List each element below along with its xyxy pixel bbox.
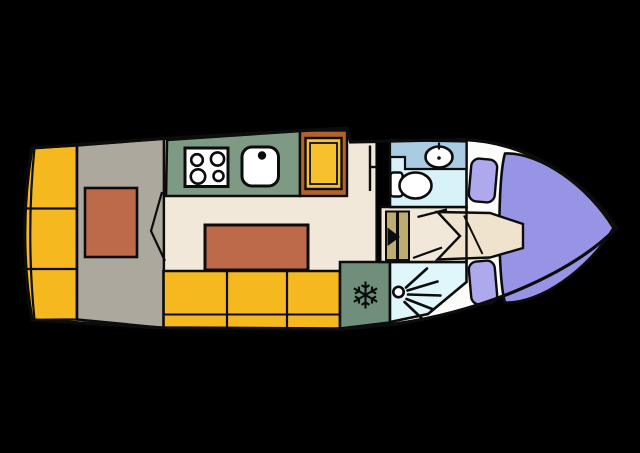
stove-burner-bl — [191, 169, 205, 183]
saloon-table — [205, 225, 308, 270]
basin-drain — [437, 156, 441, 160]
boat-floorplan: ❄ — [0, 0, 640, 453]
aft-cabin-mattress — [85, 188, 137, 257]
corridor-left-wall — [377, 207, 382, 262]
snowflake-icon: ❄ — [350, 275, 381, 318]
stove-burner-tr — [211, 152, 224, 165]
stove-burner-tl — [191, 154, 203, 166]
saloon-bench — [164, 271, 341, 329]
steps-right — [398, 212, 409, 261]
toilet-icon — [400, 173, 432, 199]
sink-drain — [258, 151, 266, 159]
bow-cushion-top — [468, 158, 498, 203]
stove-burner-br — [214, 171, 224, 181]
